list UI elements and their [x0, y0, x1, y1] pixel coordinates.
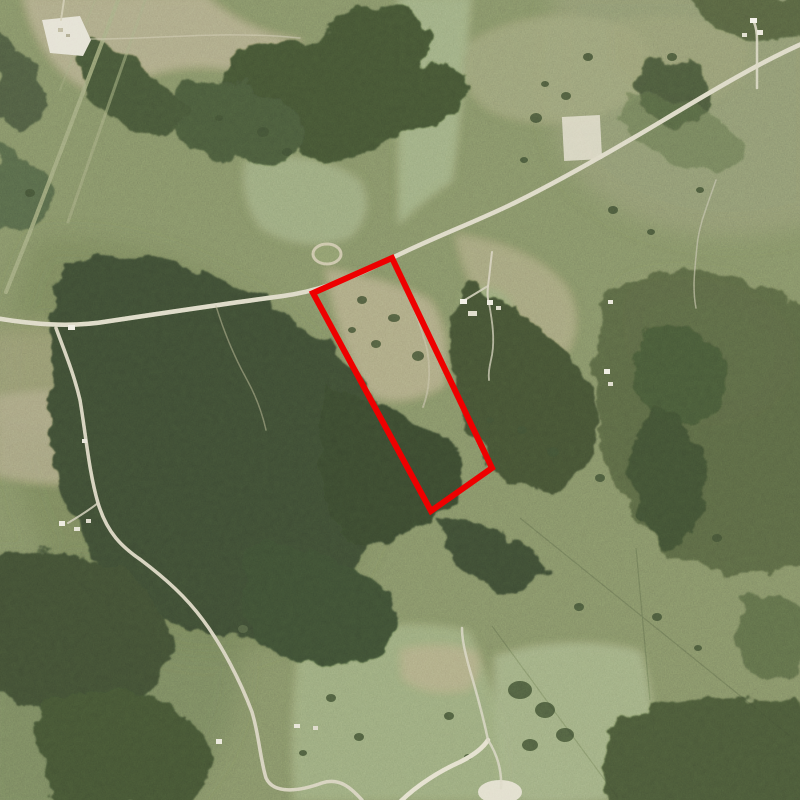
aerial-photo-canvas [0, 0, 800, 800]
grain-overlay-coarse [0, 0, 800, 800]
aerial-map-view [0, 0, 800, 800]
